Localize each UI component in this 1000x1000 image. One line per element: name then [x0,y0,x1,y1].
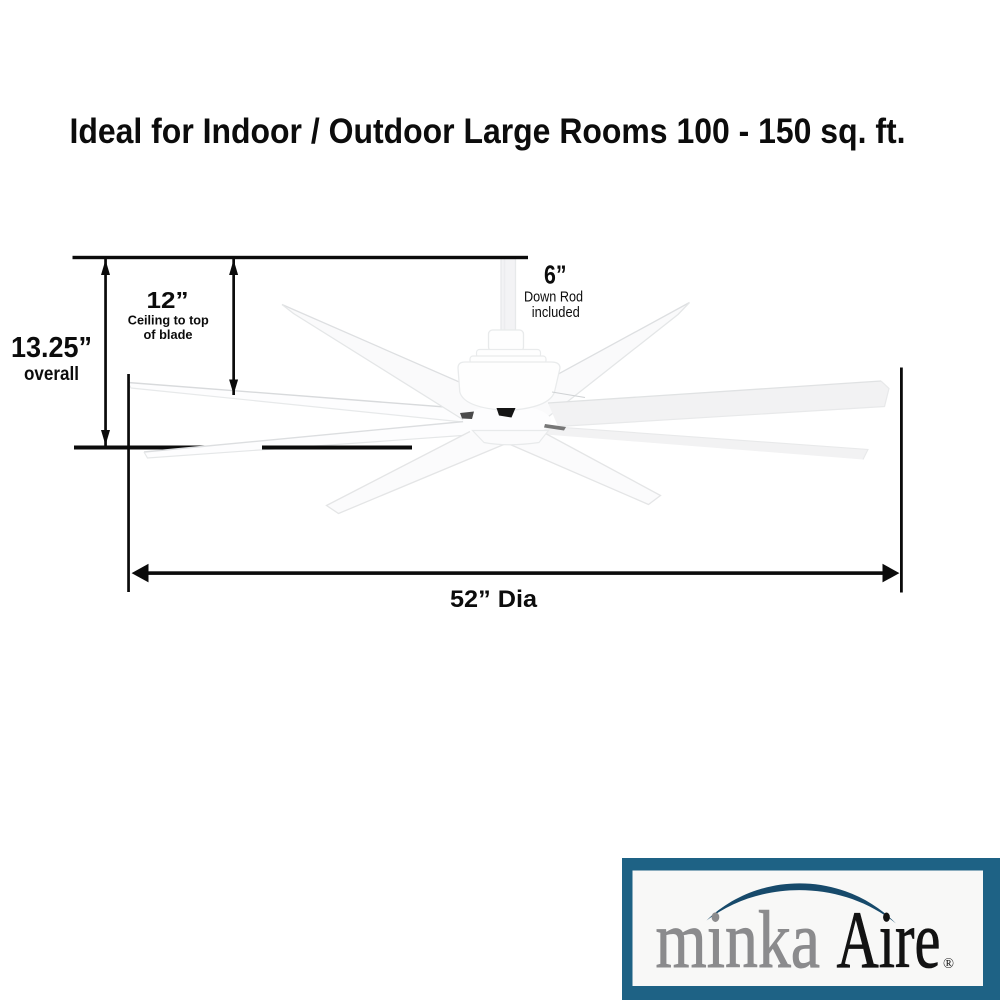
svg-text:Ceiling to top: Ceiling to top [128,313,209,328]
svg-text:12”: 12” [147,287,189,313]
svg-text:Down Rod: Down Rod [524,290,583,306]
svg-text:Ideal for Indoor / Outdoor Lar: Ideal for Indoor / Outdoor Large Rooms 1… [70,111,906,151]
svg-text:overall: overall [24,364,79,385]
svg-text:of blade: of blade [144,327,193,342]
svg-text:minka: minka [656,894,821,985]
svg-text:13.25”: 13.25” [11,332,92,364]
svg-text:6”: 6” [544,260,567,290]
svg-text:52” Dia: 52” Dia [450,586,538,613]
svg-text:Aire: Aire [837,894,941,985]
svg-text:included: included [532,305,580,321]
svg-text:®: ® [943,956,954,972]
